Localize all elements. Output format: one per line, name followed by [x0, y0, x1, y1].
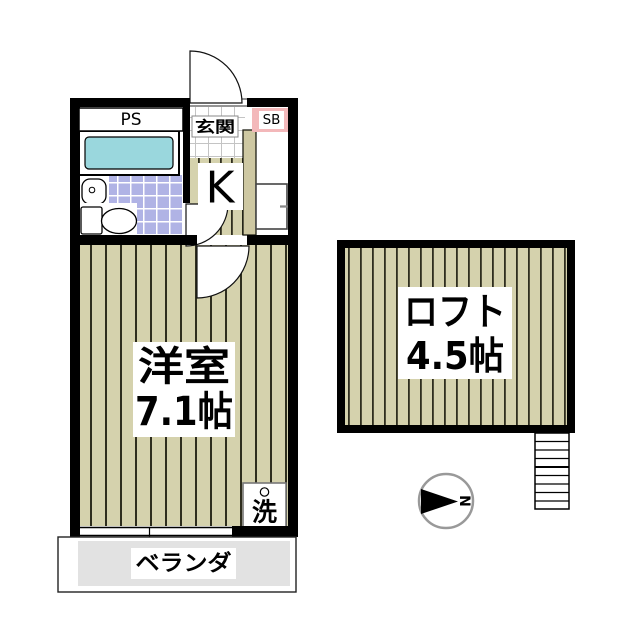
- wall-left: [70, 98, 80, 537]
- toilet-bowl: [102, 209, 137, 234]
- loft-size-label: 4.5帖: [406, 334, 504, 378]
- compass-north-label: N: [456, 495, 472, 507]
- wall-bath-bottom: [70, 235, 197, 245]
- wall-top-left: [70, 98, 190, 107]
- washer-faucet-icon: [260, 488, 268, 496]
- bathtub: [85, 137, 173, 169]
- floorplan-page: N PS 玄関 SB K 洋室 7.1帖 洗 ロフト 4.5帖 ベランダ: [0, 0, 640, 640]
- washer-label: 洗: [252, 498, 277, 527]
- entrance-label: 玄関: [195, 117, 235, 136]
- kitchen-cabinet-strip: [243, 130, 256, 235]
- wall-kitchen-bottom: [247, 235, 298, 245]
- room-size-label: 7.1帖: [135, 389, 233, 435]
- wall-bath-divider: [183, 107, 190, 203]
- compass: N: [419, 474, 473, 528]
- floorplan-canvas: N PS 玄関 SB K 洋室 7.1帖 洗 ロフト 4.5帖 ベランダ: [0, 0, 640, 640]
- shoebox-label: SB: [263, 112, 281, 128]
- veranda-label: ベランダ: [136, 551, 232, 577]
- kitchen-label: K: [206, 163, 236, 214]
- loft-name-label: ロフト: [404, 290, 506, 334]
- room-name-label: 洋室: [138, 344, 230, 390]
- entrance-door-swing: [190, 51, 242, 103]
- loft-ladder: [535, 433, 569, 509]
- toilet-tank: [81, 207, 102, 234]
- sink-drain-icon: [89, 187, 95, 193]
- ps-label: PS: [120, 110, 141, 130]
- wall-right: [288, 98, 298, 537]
